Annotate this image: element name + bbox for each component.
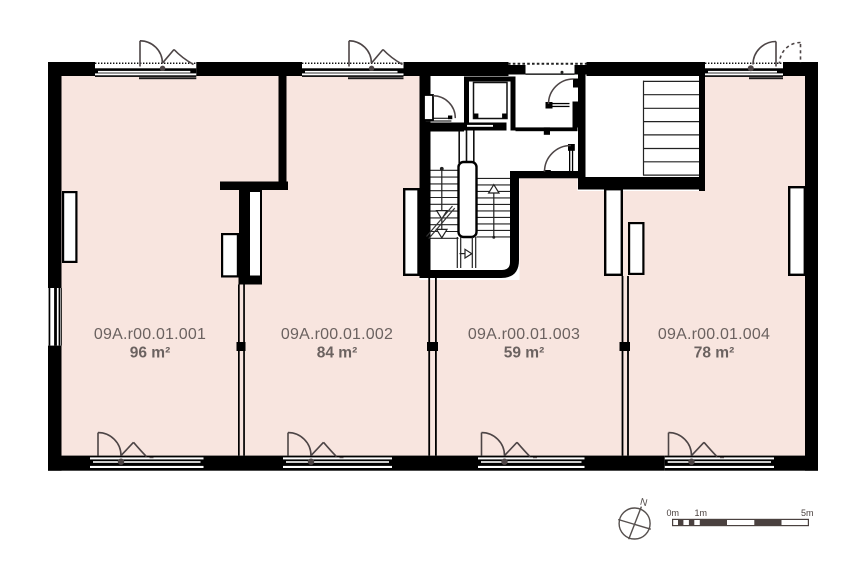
svg-text:84 m²: 84 m²: [317, 345, 358, 362]
svg-text:09A.r00.01.001: 09A.r00.01.001: [94, 326, 206, 343]
svg-text:96 m²: 96 m²: [130, 345, 171, 362]
svg-text:78 m²: 78 m²: [694, 345, 735, 362]
svg-text:09A.r00.01.004: 09A.r00.01.004: [658, 326, 770, 343]
svg-text:5m: 5m: [801, 508, 814, 518]
svg-text:09A.r00.01.002: 09A.r00.01.002: [281, 326, 393, 343]
svg-text:0m: 0m: [667, 508, 680, 518]
svg-text:1m: 1m: [695, 508, 708, 518]
svg-text:09A.r00.01.003: 09A.r00.01.003: [468, 326, 580, 343]
svg-text:59 m²: 59 m²: [504, 345, 545, 362]
